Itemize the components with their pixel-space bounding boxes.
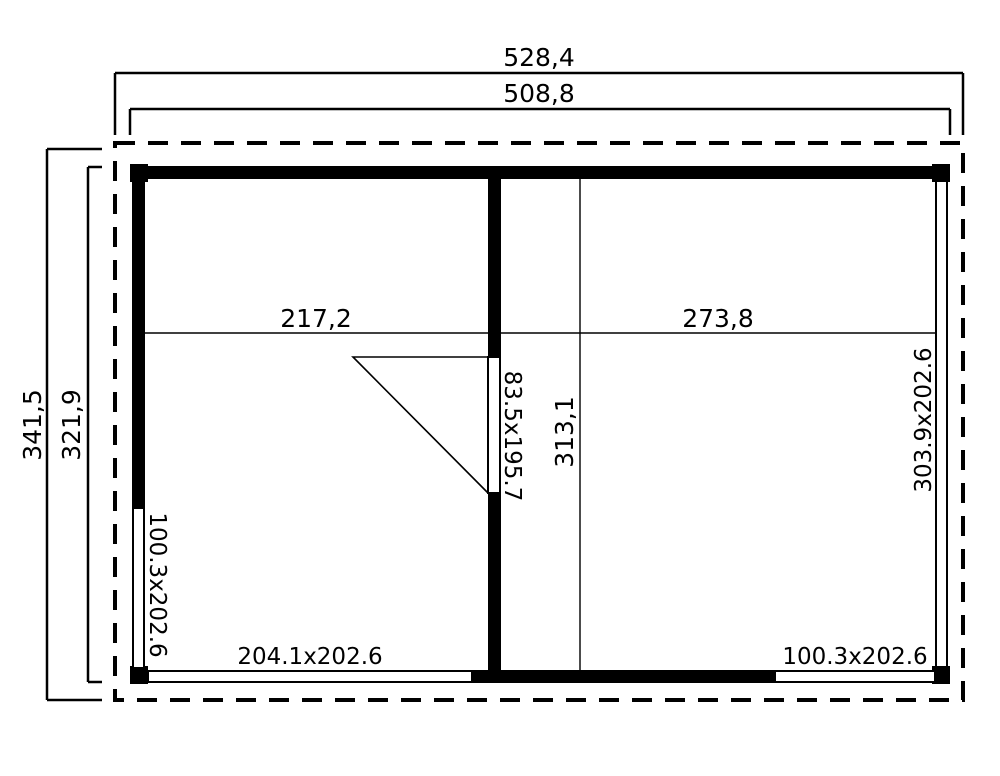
wall-top [132,166,948,179]
window-left-wall-label: 100.3x202.6 [144,512,170,657]
dim-label-top-wall: 508,8 [503,79,575,108]
dim-label-left-outer: 341,5 [18,389,47,461]
window-bottom-left [148,671,472,682]
window-bottom-right [775,671,935,682]
window-bottom-right-label: 100.3x202.6 [782,644,927,670]
window-right-wall [936,181,947,667]
corner-post-top-right [932,164,950,182]
dim-label-room-left-width: 217,2 [280,304,352,333]
door-label: 83.5x195.7 [499,371,525,502]
window-bottom-left-label: 204.1x202.6 [237,644,382,670]
window-right-wall-label: 303.9x202.6 [911,347,937,492]
floorplan-drawing: 528,4 508,8 341,5 321,9 217,2 273,8 313,… [0,0,1000,771]
dim-label-room-right-width: 273,8 [682,304,754,333]
dim-label-left-wall: 321,9 [57,389,86,461]
window-left-wall [133,508,144,668]
dim-label-interior-depth: 313,1 [550,396,579,468]
floorplan-page: 528,4 508,8 341,5 321,9 217,2 273,8 313,… [0,0,1000,771]
dim-label-top-outer: 528,4 [503,43,575,72]
corner-post-top-left [130,164,148,182]
door-leaf [488,357,500,493]
